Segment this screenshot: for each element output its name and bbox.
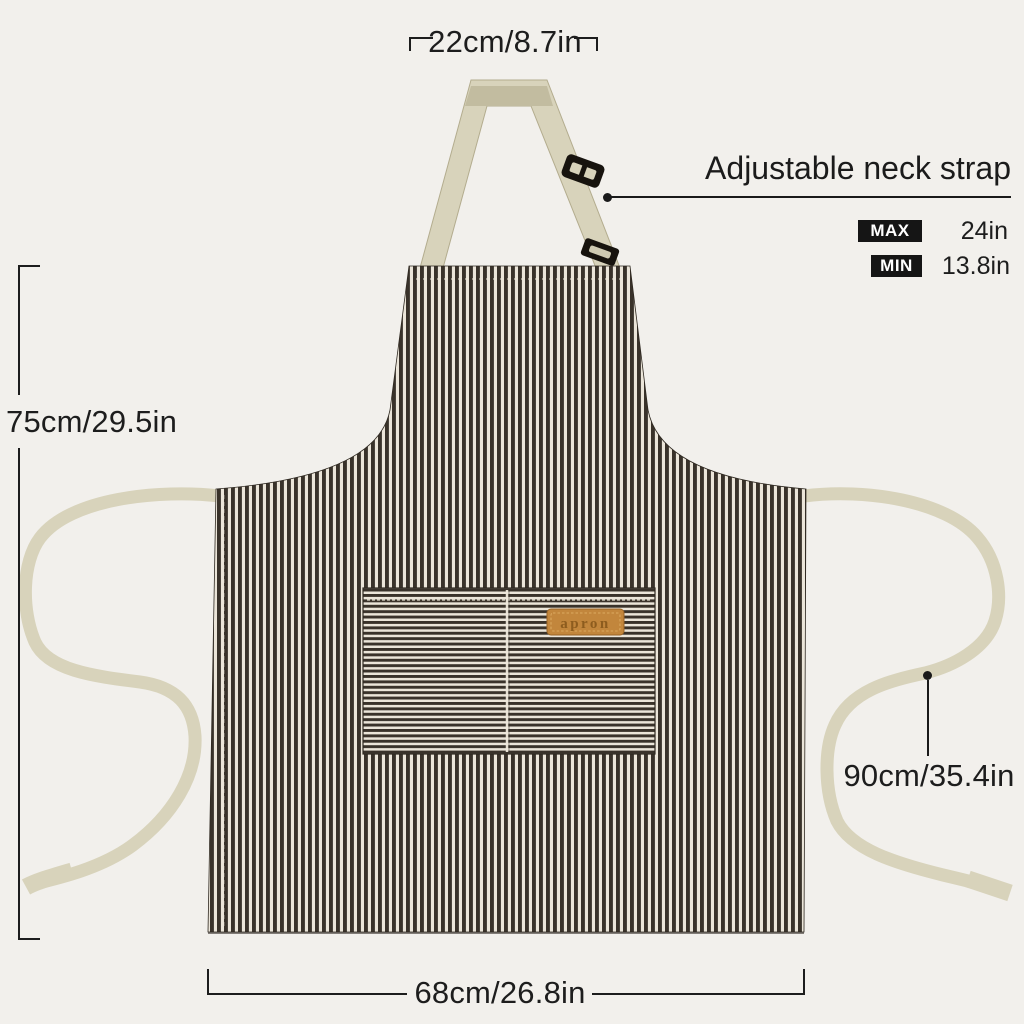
dimension-label-top-width: 22cm/8.7in — [428, 23, 582, 60]
min-badge: MIN — [871, 255, 922, 277]
strap-fold-shading — [465, 86, 553, 106]
bracket-mark-right — [592, 969, 805, 995]
callout-dot-icon — [923, 671, 932, 680]
dimension-label-left-height: 75cm/29.5in — [6, 403, 177, 440]
waist-tie-left — [25, 494, 220, 887]
bracket-segment-top — [18, 265, 40, 395]
neck-strap-callout-label: Adjustable neck strap — [705, 150, 1011, 187]
waist-tie-right — [804, 494, 1010, 893]
pocket: apron — [363, 588, 655, 754]
bracket-mark-right — [574, 37, 598, 51]
callout-line — [610, 196, 1011, 198]
bracket-segment-bottom — [18, 448, 40, 940]
max-value: 24in — [961, 217, 1008, 246]
dimension-label-bottom-width: 68cm/26.8in — [414, 974, 585, 1011]
brand-label: apron — [547, 609, 624, 635]
callout-line — [927, 680, 929, 756]
bracket-mark-left — [207, 969, 407, 995]
min-value: 13.8in — [942, 252, 1010, 281]
max-badge: MAX — [858, 220, 922, 242]
neck-strap — [420, 80, 620, 268]
brand-label-text: apron — [560, 616, 611, 632]
product-image: apron 22cm/8.7in Adjustable neck strap M… — [0, 0, 1024, 1024]
dimension-label-tie-length: 90cm/35.4in — [843, 757, 1014, 794]
